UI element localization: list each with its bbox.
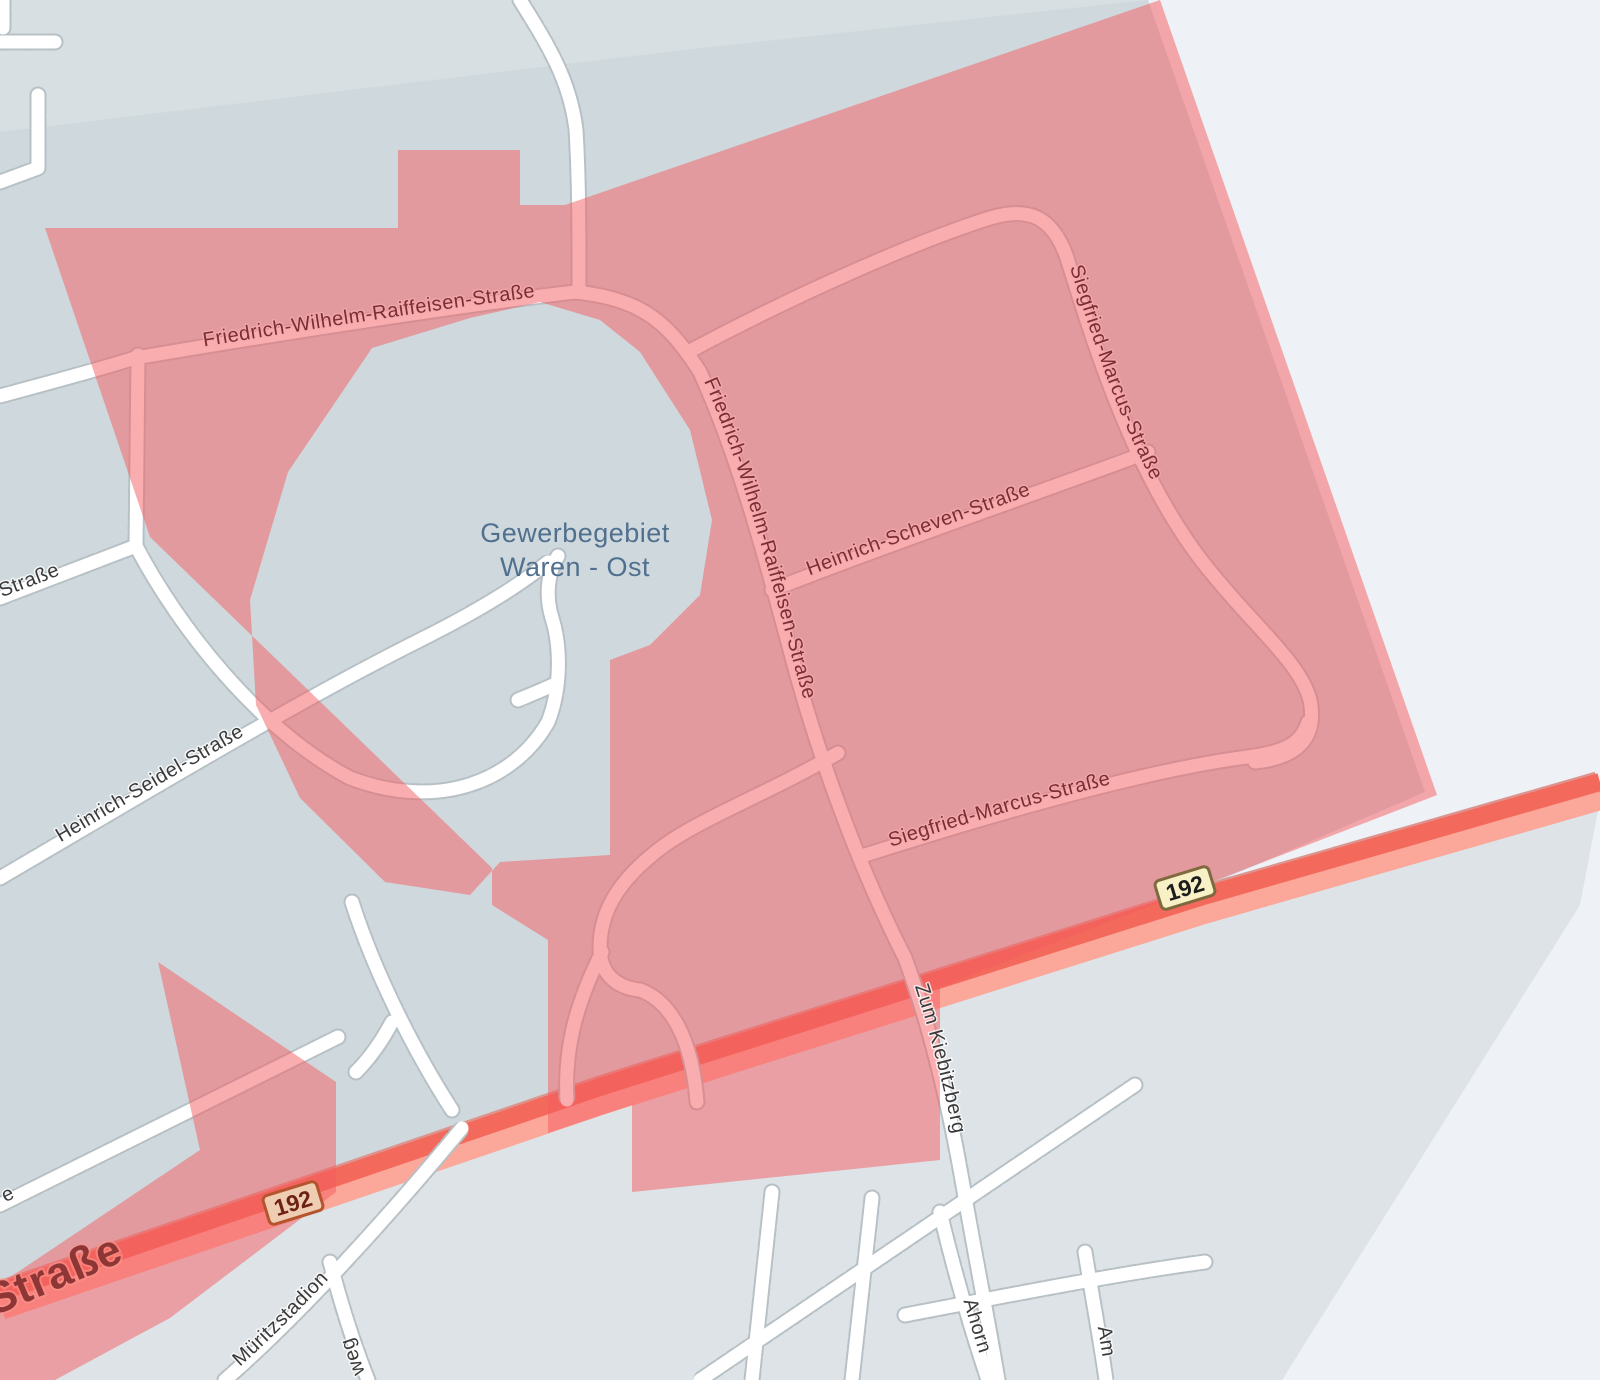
map-canvas[interactable]: Friedrich-Wilhelm-Raiffeisen-Straße Frie… (0, 0, 1600, 1380)
area-label-line1: Gewerbegebiet (480, 518, 670, 548)
area-label-line2: Waren - Ost (500, 552, 650, 582)
map-viewport[interactable]: Friedrich-Wilhelm-Raiffeisen-Straße Frie… (0, 0, 1600, 1380)
